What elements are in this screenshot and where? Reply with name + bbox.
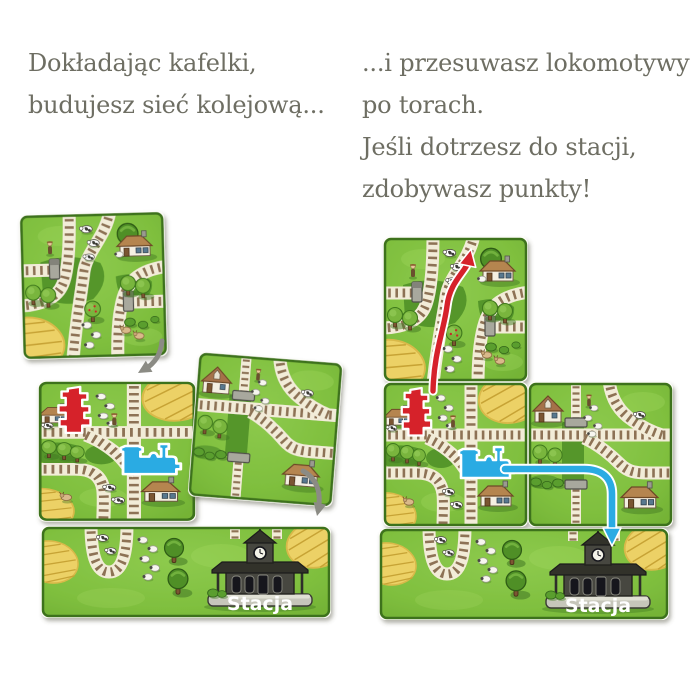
station-strip-right [359,517,690,620]
rulebook-illustration: Stacja Stacja [0,0,700,700]
tile-crossing-right [358,368,547,540]
caption-line: ...i przesuwasz lokomotywy [362,42,690,84]
tile-s-curve-left [0,209,170,375]
caption-line: Dokładając kafelki, [28,42,325,84]
tile-junction-left-floating [185,349,345,509]
caption-right: ...i przesuwasz lokomotywy po torach. Je… [362,42,690,210]
caption-left: Dokładając kafelki, budujesz sieć kolejo… [28,42,325,126]
tile-crossing-left [11,367,217,534]
caption-line: zdobywasz punkty! [362,168,690,210]
caption-line: Jeśli dotrzesz do stacji, [362,126,690,168]
station-label-right: Stacja [565,595,631,617]
right-example: Stacja [356,235,690,620]
left-example: Stacja [0,209,352,618]
station-strip-left [21,515,352,618]
caption-line: po torach. [362,84,690,126]
caption-line: budujesz sieć kolejową... [28,84,325,126]
station-label-left: Stacja [227,593,293,615]
tile-junction-right [526,380,675,529]
